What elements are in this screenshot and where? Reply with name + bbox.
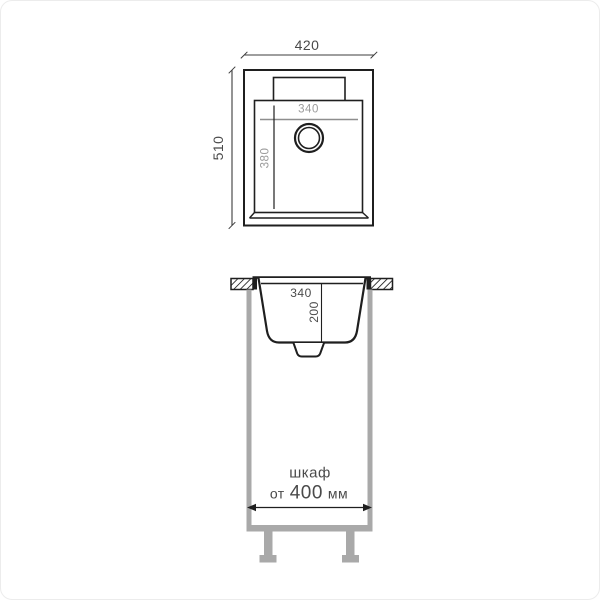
countertop-right-hatch xyxy=(371,279,393,290)
sink-technical-drawing: 420 510 340 380 340 200 шкаф от 400 мм xyxy=(0,0,600,600)
label-bowl-width-section: 340 xyxy=(290,287,312,299)
label-cabinet-word: шкаф xyxy=(289,465,331,480)
cabinet-left-wall xyxy=(247,290,252,532)
top-view xyxy=(229,52,378,229)
label-cabinet-from: от xyxy=(270,486,285,500)
cabinet-right-wall xyxy=(368,290,373,532)
label-bowl-width-top: 340 xyxy=(298,104,319,116)
cabinet-right-leg xyxy=(346,532,355,556)
drain-fitting xyxy=(294,343,325,357)
sink-rim-left-cap xyxy=(253,277,258,290)
label-overall-width: 420 xyxy=(295,38,320,52)
label-cabinet-value: 400 xyxy=(290,483,323,502)
faucet-ledge-rect xyxy=(274,78,346,102)
cabinet-bottom-panel xyxy=(247,525,373,532)
cabinet-left-foot xyxy=(260,555,277,563)
cabinet-right-foot xyxy=(342,555,359,563)
label-cabinet-size: от 400 мм xyxy=(270,483,348,502)
label-overall-depth: 510 xyxy=(211,136,225,161)
label-bowl-height-section: 200 xyxy=(308,301,320,323)
label-cabinet-unit: мм xyxy=(328,486,348,500)
countertop-left-hatch xyxy=(231,279,253,290)
label-bowl-depth-top: 380 xyxy=(260,147,272,168)
sink-rim-right-cap xyxy=(367,277,372,290)
cabinet-left-leg xyxy=(264,532,273,556)
drawing-linework xyxy=(1,1,600,600)
